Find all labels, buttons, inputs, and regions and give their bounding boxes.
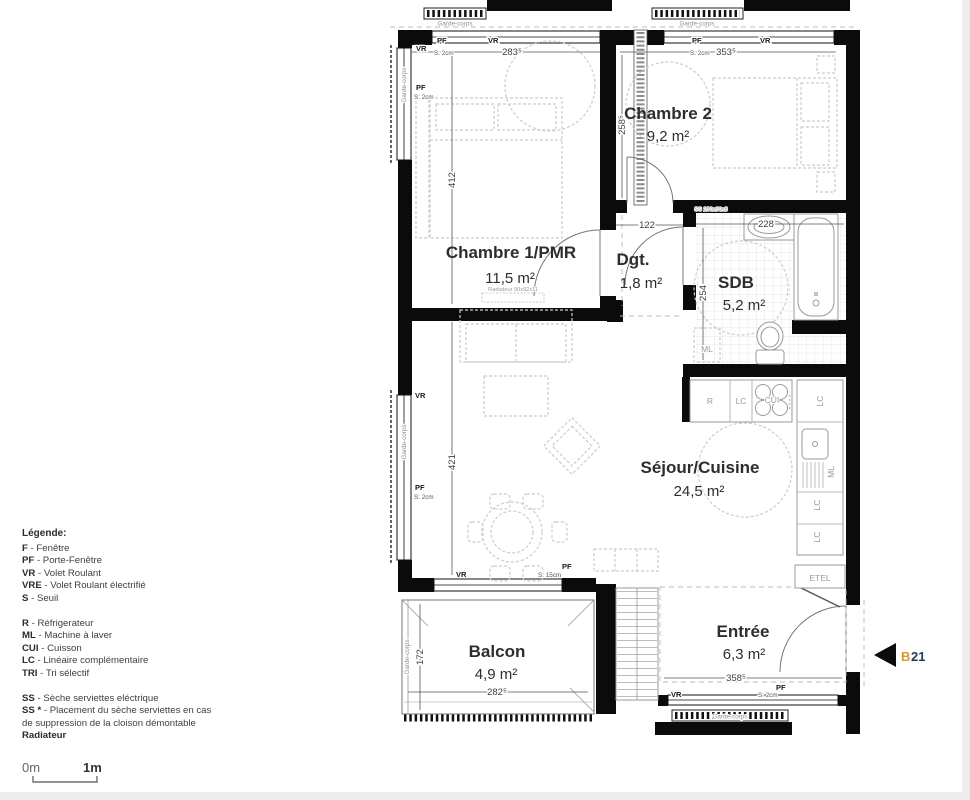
room-entree-name: Entrée [717,622,770,641]
cooktop-label: CUI [765,395,780,405]
room-chambre1-area: 11,5 m² [485,270,535,287]
pf-label: PF [437,36,447,45]
window-entree-bottom [668,695,838,705]
page-edge-bottom [0,792,970,800]
unit-prefix: B [901,649,910,664]
etel-label: ETEL [809,573,831,583]
legend-item: LC - Linéaire complémentaire [22,655,218,668]
legend-item: F - Fenêtre [22,543,218,556]
dining-table [468,494,567,581]
legend-item: VRE - Volet Roulant électrifié [22,580,218,593]
room-dgt-name: Dgt. [616,250,649,269]
unit-arrow-icon [874,643,896,667]
room-balcon-name: Balcon [469,642,526,661]
room-sejour-name: Séjour/Cuisine [640,458,759,477]
window-sejour-left [391,390,411,565]
seuil-label: S: 2cm [690,50,710,57]
bed-chambre2 [713,56,837,192]
pf-label: PF [692,36,702,45]
building-context: Garde-corps Garde-corps [390,0,858,28]
towel-dryer-label: SS 130x60x8 [694,207,727,213]
room-chambre2-area: 9,2 m² [647,128,690,145]
dim-chambre1-top: 283⁵ [502,47,522,58]
legend-title: Légende: [22,528,218,541]
seuil-label: S: 2cm [414,94,434,101]
legend-item: CUI - Cuisson [22,643,218,656]
seuil-label: S: 2cm [434,50,454,57]
dim-balcon-width: 282⁵ [487,687,507,698]
vr-label: VR [671,690,682,699]
washer-label: ML [826,466,836,478]
pf-label: PF [562,562,572,571]
legend-item: ML - Machine à laver [22,630,218,643]
dim-chambre2-top: 353⁵ [716,47,736,58]
garde-corps-label: Garde-corps [680,21,715,28]
window-chambre2-top [664,31,834,43]
armchair [544,418,601,475]
legend-item: R - Réfrigerateur [22,618,218,631]
door-chambre1 [534,230,600,296]
dim-chambre1-height: 412 [447,172,458,188]
pf-label: PF [416,83,426,92]
toilet [756,322,784,364]
guardrail-top-right: Garde-corps [652,8,743,28]
legend-item: TRI - Tri sélectif [22,668,218,681]
legend-item: SS * - Placement du sèche serviettes en … [22,705,218,730]
seuil-label: S: 2cm [414,494,434,501]
radiator-chambre1: Radiateur 90x92x11 [482,287,544,302]
legend-item: S - Seuil [22,593,218,606]
dim-entree-width: 358⁵ [726,673,746,684]
room-sdb-name: SDB [718,273,754,292]
garde-corps-label: Garde-corps [404,640,411,675]
seuil-label: S: 2cm [758,692,778,699]
legend-item: PF - Porte-Fenêtre [22,555,218,568]
entree-closet [616,588,658,700]
radiator-label: Radiateur 90x92x11 [488,287,538,293]
dim-balcon-height: 172 [415,649,426,665]
unit-number: 21 [911,649,925,664]
seuil-label: S: 15cm [538,572,561,579]
door-etel [797,586,840,607]
unit-marker-b21: B 21 [874,643,925,667]
guardrail-top-left: Garde-corps [424,8,486,28]
room-balcon-area: 4,9 m² [475,666,518,683]
bed-chambre1 [416,98,562,238]
legend-item: VR - Volet Roulant [22,568,218,581]
room-dgt-area: 1,8 m² [620,275,663,292]
garde-corps-label: Garde-corps [401,68,408,103]
window-balcon [434,579,562,591]
scale-bar: 0m 1m [22,760,102,782]
legend: Légende: F - Fenêtre PF - Porte-Fenêtre … [22,528,218,743]
legend-item: Radiateur [22,730,218,743]
vr-label: VR [456,570,467,579]
lc-label: LC [736,396,747,406]
floor-plan-page: Garde-corps Garde-corps [0,0,970,800]
garde-corps-label: Garde-corps [401,425,408,460]
bathtub [794,214,838,320]
dim-dgt-width: 122 [639,220,655,231]
room-entree-area: 6,3 m² [723,646,766,663]
room-sejour-area: 24,5 m² [674,483,725,500]
legend-item: SS - Sèche serviettes eléctrique [22,693,218,706]
entree-guardrail: Garde-corps [672,710,788,721]
sideboard [594,549,658,571]
pf-label: PF [776,683,786,692]
lc-label: LC [815,396,825,407]
room-sdb-area: 5,2 m² [723,297,766,314]
scale-one: 1m [83,760,102,775]
pf-label: PF [415,483,425,492]
dim-sdb-width: 228 [758,219,774,230]
garde-corps-label: Garde-corps [713,714,748,721]
dim-sdb-height: 254 [698,285,709,301]
window-chambre1-top [432,31,600,43]
vr-label: VR [415,391,426,400]
coffee-table [484,376,548,416]
vr-label: VR [760,36,771,45]
vr-label: VR [488,36,499,45]
vr-label: VR [416,44,427,53]
dim-sejour-height: 421 [447,454,458,470]
room-chambre1-name: Chambre 1/PMR [446,243,576,262]
scale-zero: 0m [22,760,40,775]
scale-bracket [33,776,97,782]
lc-label: LC [812,532,822,543]
lc-label: LC [812,500,822,511]
window-chambre1-left [391,45,411,165]
etel-closet: ETEL [795,565,845,588]
room-chambre2-name: Chambre 2 [624,104,712,123]
page-edge-right [962,0,970,800]
sdb-ml-label: ML [701,344,713,354]
fridge-label: R [707,396,713,406]
garde-corps-label: Garde-corps [438,21,473,28]
